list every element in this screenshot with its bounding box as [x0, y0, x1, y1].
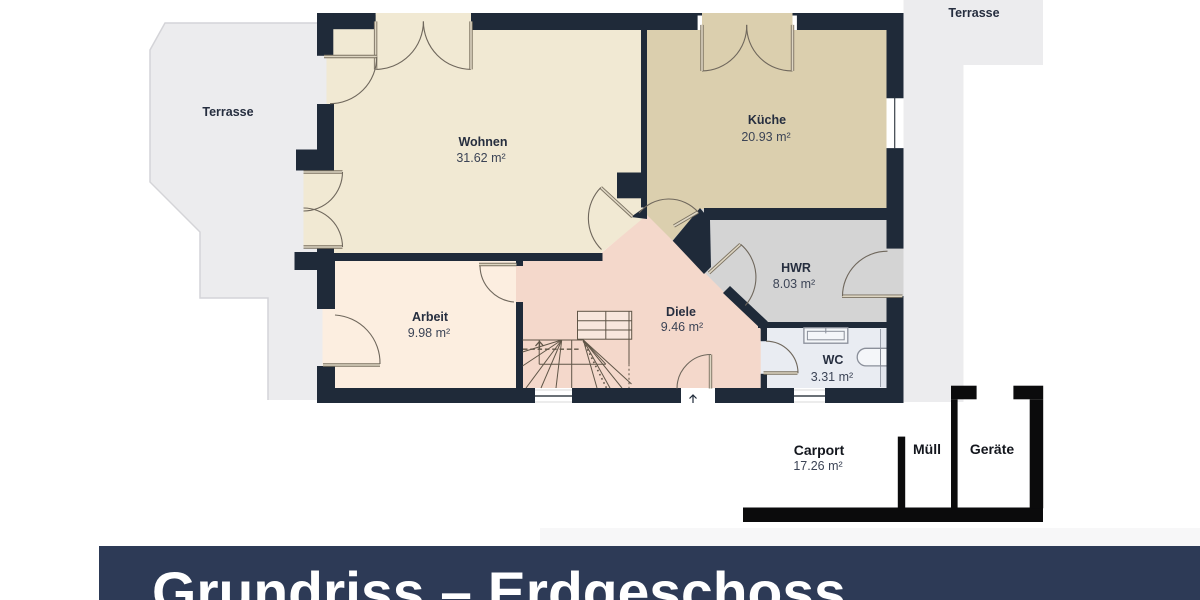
svg-text:Carport: Carport: [794, 442, 845, 458]
svg-text:Terrasse: Terrasse: [948, 6, 999, 20]
svg-text:Arbeit: Arbeit: [412, 310, 449, 324]
svg-text:Grundriss – Erdgeschoss: Grundriss – Erdgeschoss: [152, 561, 846, 600]
svg-text:Diele: Diele: [666, 305, 696, 319]
svg-text:17.26 m²: 17.26 m²: [793, 459, 842, 473]
svg-text:9.46 m²: 9.46 m²: [661, 320, 703, 334]
svg-text:Geräte: Geräte: [970, 441, 1015, 457]
svg-text:Terrasse: Terrasse: [202, 105, 253, 119]
svg-text:HWR: HWR: [781, 261, 811, 275]
svg-text:Müll: Müll: [913, 441, 941, 457]
svg-text:Küche: Küche: [748, 113, 786, 127]
svg-text:WC: WC: [823, 353, 844, 367]
svg-text:20.93 m²: 20.93 m²: [741, 130, 790, 144]
svg-text:Wohnen: Wohnen: [458, 135, 507, 149]
svg-text:9.98 m²: 9.98 m²: [408, 326, 450, 340]
svg-text:3.31 m²: 3.31 m²: [811, 370, 853, 384]
svg-text:8.03 m²: 8.03 m²: [773, 277, 815, 291]
svg-text:31.62 m²: 31.62 m²: [456, 151, 505, 165]
